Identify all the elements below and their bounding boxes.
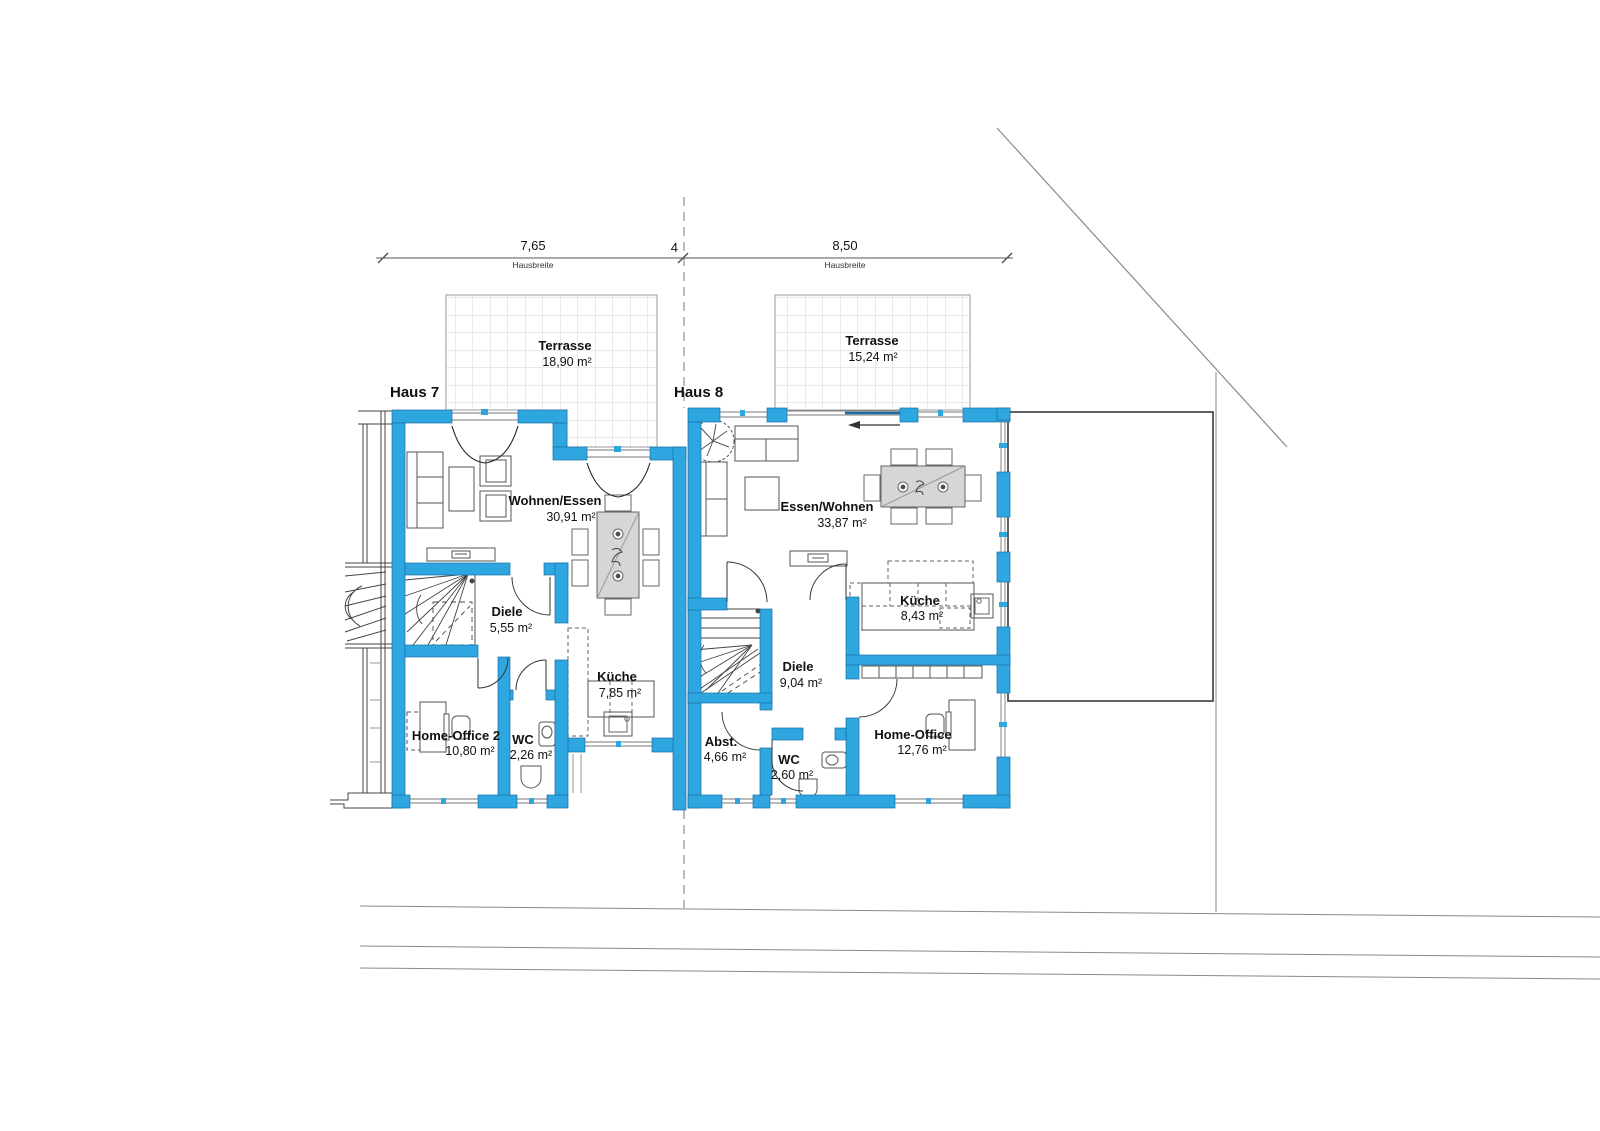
dim-left-sublabel: Hausbreite <box>512 260 553 270</box>
haus7-living-furniture <box>407 452 511 561</box>
haus7-label: Haus 7 <box>390 384 439 401</box>
haus8-living-furniture <box>692 420 847 566</box>
haus7-room-wohnen-name: Wohnen/Essen <box>509 493 602 508</box>
haus8-room-kueche-area: 8,43 m² <box>901 609 943 623</box>
dimension-line <box>376 253 1013 263</box>
terrace-haus7 <box>446 295 657 447</box>
haus8-room-essen-name: Essen/Wohnen <box>781 499 874 514</box>
haus7-stair <box>405 574 475 645</box>
haus8-room-homeoffice-area: 12,76 m² <box>897 743 946 757</box>
haus8-stair <box>694 609 768 693</box>
haus8-room-abst-area: 4,66 m² <box>704 750 746 764</box>
haus7-room-kueche-area: 7,85 m² <box>599 686 641 700</box>
haus8-room-essen-area: 33,87 m² <box>817 516 866 530</box>
haus8-room-wc-name: WC <box>778 752 800 767</box>
haus7-room-wc-name: WC <box>512 732 534 747</box>
dim-left-value: 7,65 <box>520 238 545 253</box>
haus8-room-homeoffice-name: Home-Office <box>874 727 951 742</box>
floor-plan-page: 7,65 4 8,50 Hausbreite Hausbreite Haus 7… <box>0 0 1600 1131</box>
haus7-terrace-area: 18,90 m² <box>542 355 591 369</box>
haus8-label: Haus 8 <box>674 384 723 401</box>
haus8-terrace-area: 15,24 m² <box>848 350 897 364</box>
dim-right-value: 8,50 <box>832 238 857 253</box>
haus8-room-diele-name: Diele <box>782 659 813 674</box>
floor-plan-drawing: 7,65 4 8,50 Hausbreite Hausbreite Haus 7… <box>0 0 1600 1131</box>
haus8-room-diele-area: 9,04 m² <box>780 676 822 690</box>
haus7-room-diele-name: Diele <box>491 604 522 619</box>
haus8-room-abst-name: Abst. <box>705 734 738 749</box>
haus7-terrace-name: Terrasse <box>538 338 591 353</box>
dim-mid-value: 4 <box>671 240 678 255</box>
road-lines <box>360 906 1600 979</box>
garage-outline <box>1008 412 1213 701</box>
haus7-room-wohnen-area: 30,91 m² <box>546 510 595 524</box>
haus8-terrace-name: Terrasse <box>845 333 898 348</box>
haus8-dining-set <box>864 449 981 524</box>
haus7-room-wc-area: 2,26 m² <box>510 748 552 762</box>
haus7-room-kueche-name: Küche <box>597 669 637 684</box>
haus7-room-diele-area: 5,55 m² <box>490 621 532 635</box>
haus7-room-homeoffice-area: 10,80 m² <box>445 744 494 758</box>
haus8-room-wc-area: 2,60 m² <box>771 768 813 782</box>
haus7-room-homeoffice-name: Home-Office 2 <box>412 728 500 743</box>
dim-right-sublabel: Hausbreite <box>824 260 865 270</box>
neighbour-house-outline <box>330 411 392 808</box>
haus8-room-kueche-name: Küche <box>900 593 940 608</box>
